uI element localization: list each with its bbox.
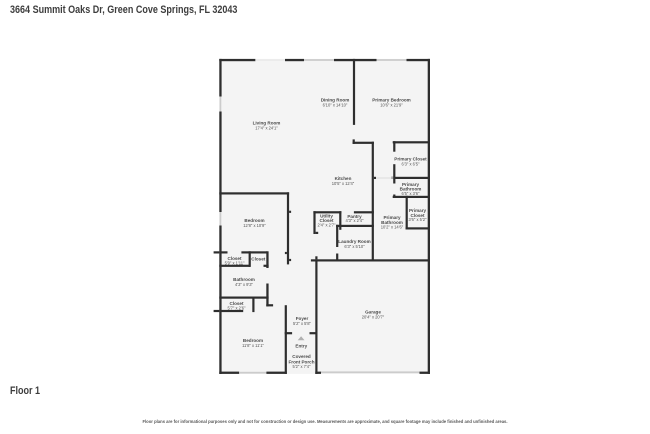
svg-text:17'4" x 24'1": 17'4" x 24'1" (255, 125, 278, 130)
svg-text:6'10" x 14'10": 6'10" x 14'10" (323, 102, 348, 107)
svg-text:Covered: Covered (292, 354, 311, 359)
svg-text:20'4" x 20'7": 20'4" x 20'7" (362, 314, 385, 319)
svg-text:10'5" x 12'4": 10'5" x 12'4" (332, 181, 355, 186)
svg-text:Closet: Closet (251, 257, 266, 262)
svg-text:12'8" x 10'9": 12'8" x 10'9" (243, 223, 266, 228)
svg-text:Entry: Entry (295, 344, 307, 349)
svg-text:10'2" x 14'6": 10'2" x 14'6" (381, 224, 404, 229)
svg-text:5'7" x 2'6": 5'7" x 2'6" (228, 306, 246, 311)
svg-text:6'5" x 3'6": 6'5" x 3'6" (402, 191, 420, 196)
svg-text:5'2" x 5'8": 5'2" x 5'8" (293, 321, 311, 326)
svg-text:2'4" x 2'7": 2'4" x 2'7" (318, 223, 336, 228)
svg-text:5'2" x 7'4": 5'2" x 7'4" (293, 364, 311, 369)
svg-text:5'9" x 1'11": 5'9" x 1'11" (225, 261, 245, 266)
svg-text:6'3" x 6'5": 6'3" x 6'5" (402, 161, 420, 166)
svg-text:3'6" x 5'2": 3'6" x 5'2" (409, 217, 427, 222)
svg-text:4'3" x 2'4": 4'3" x 2'4" (346, 218, 364, 223)
svg-text:4'3" x 9'3": 4'3" x 9'3" (235, 282, 253, 287)
svg-text:10'6" x 21'9": 10'6" x 21'9" (380, 102, 403, 107)
svg-text:11'8" x 11'1": 11'8" x 11'1" (242, 343, 264, 348)
svg-text:6'3" x 5'10": 6'3" x 5'10" (344, 244, 365, 249)
